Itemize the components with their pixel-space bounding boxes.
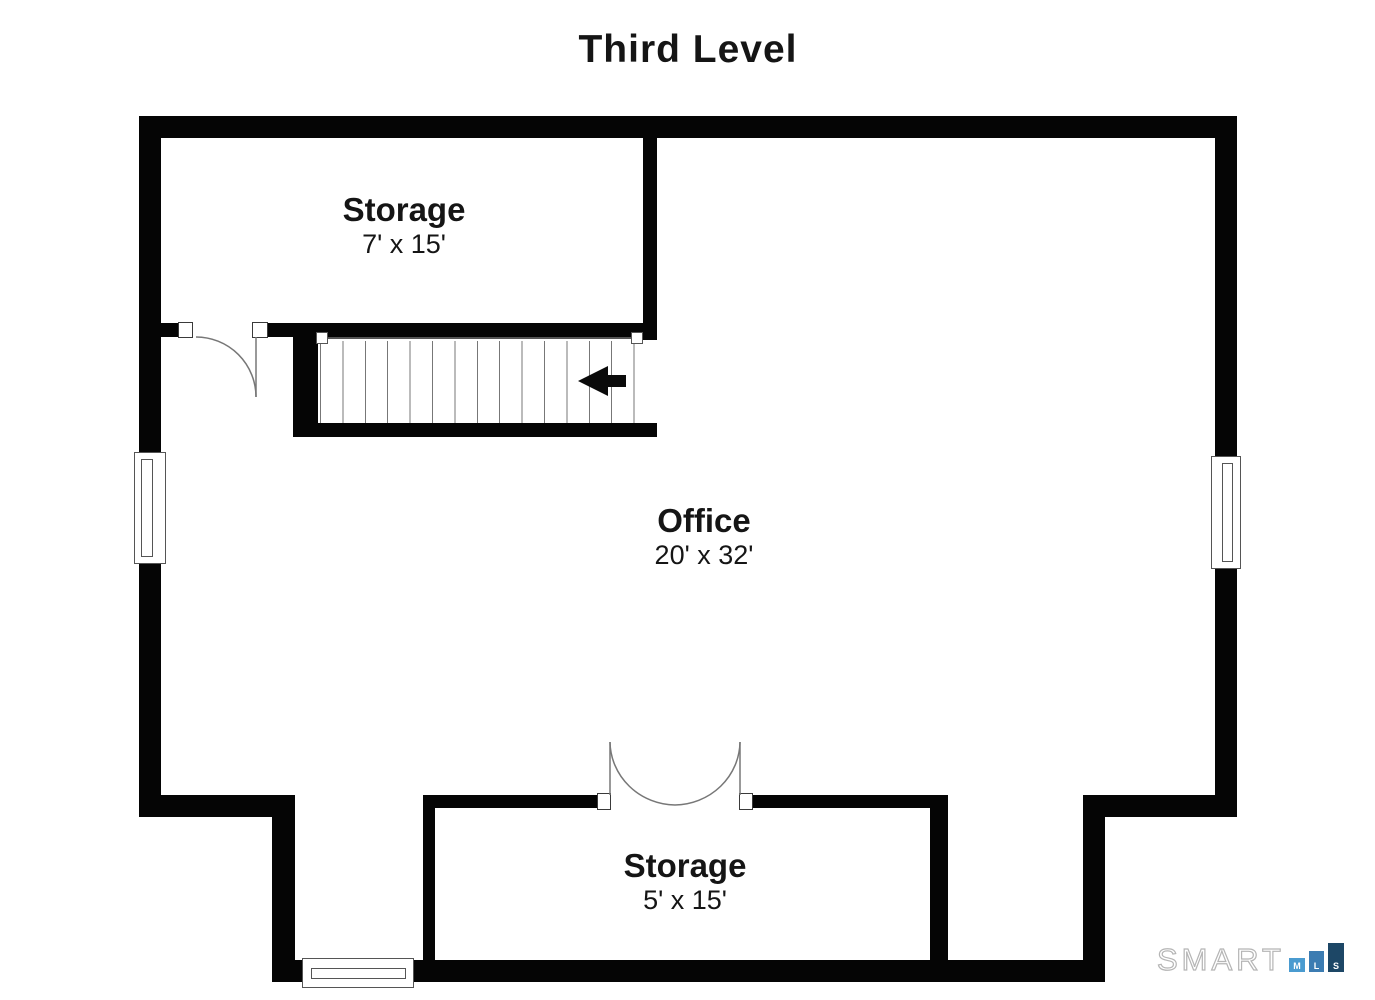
logo-square-m: M (1289, 958, 1305, 972)
floor-plan: Third Level (0, 0, 1375, 1000)
logo-square-s: S (1328, 943, 1344, 972)
room-dimensions: 5' x 15' (535, 885, 835, 916)
room-dimensions: 7' x 15' (254, 229, 554, 260)
room-label-storage-top: Storage 7' x 15' (254, 191, 554, 260)
room-dimensions: 20' x 32' (554, 540, 854, 571)
logo-brand-text: SMART (1157, 942, 1285, 978)
room-name: Storage (535, 847, 835, 885)
room-name: Storage (254, 191, 554, 229)
logo-square-l: L (1309, 951, 1324, 972)
stair-direction-arrow-icon (578, 366, 626, 396)
room-name: Office (554, 502, 854, 540)
double-door-left-arc (610, 742, 675, 805)
single-door-swing-arc (196, 337, 256, 397)
room-label-office: Office 20' x 32' (554, 502, 854, 571)
double-door-right-arc (675, 742, 740, 805)
smart-mls-logo: SMART M L S (1157, 942, 1344, 978)
room-label-storage-bottom: Storage 5' x 15' (535, 847, 835, 916)
